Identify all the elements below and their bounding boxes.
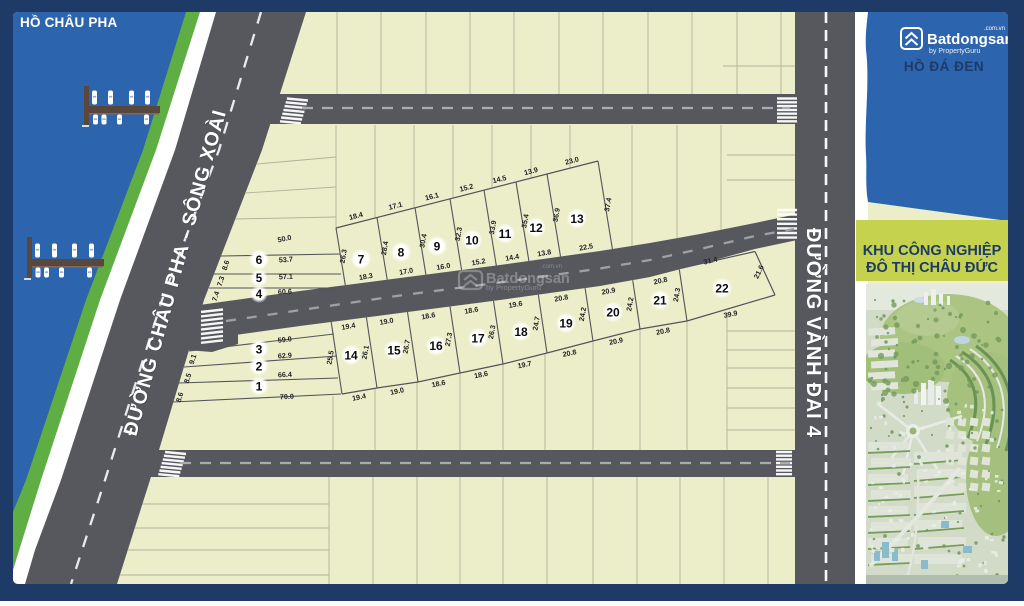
svg-text:59.0: 59.0 [277, 334, 292, 344]
svg-text:4: 4 [256, 289, 263, 301]
svg-text:13: 13 [570, 212, 584, 226]
svg-text:HỒ ĐÁ ĐEN: HỒ ĐÁ ĐEN [904, 59, 984, 74]
svg-text:70.0: 70.0 [280, 392, 294, 402]
svg-text:20: 20 [606, 305, 620, 319]
svg-text:by PropertyGuru: by PropertyGuru [929, 48, 980, 55]
svg-text:by PropertyGuru: by PropertyGuru [486, 283, 541, 292]
svg-text:17: 17 [471, 331, 485, 345]
svg-text:12: 12 [529, 221, 543, 235]
svg-text:15: 15 [387, 343, 401, 357]
svg-text:60.6: 60.6 [278, 287, 292, 297]
svg-text:10: 10 [465, 233, 479, 247]
svg-text:14: 14 [344, 348, 358, 362]
svg-text:21: 21 [653, 293, 667, 307]
svg-text:.com.vn: .com.vn [984, 26, 1005, 32]
svg-text:Batdongsan: Batdongsan [927, 31, 1014, 48]
svg-text:16: 16 [429, 339, 443, 353]
svg-text:2: 2 [256, 359, 263, 373]
svg-text:KHU CÔNG NGHIỆP: KHU CÔNG NGHIỆP [863, 241, 1002, 259]
svg-text:62.9: 62.9 [278, 351, 293, 361]
svg-text:7: 7 [358, 252, 365, 266]
svg-text:53.7: 53.7 [279, 255, 294, 265]
svg-text:11: 11 [499, 227, 512, 241]
svg-text:6: 6 [256, 253, 263, 267]
svg-text:HỒ CHÂU PHA: HỒ CHÂU PHA [20, 15, 118, 30]
svg-text:ĐÔ THỊ CHÂU ĐỨC: ĐÔ THỊ CHÂU ĐỨC [866, 258, 999, 276]
svg-text:19: 19 [559, 316, 573, 330]
svg-text:5: 5 [256, 273, 263, 285]
svg-text:9: 9 [434, 239, 441, 253]
svg-text:ĐƯỜNG VÀNH ĐAI 4: ĐƯỜNG VÀNH ĐAI 4 [802, 228, 826, 438]
svg-text:8: 8 [398, 245, 405, 259]
svg-text:3: 3 [256, 342, 263, 356]
svg-text:22: 22 [715, 281, 729, 295]
svg-text:.com.vn: .com.vn [541, 264, 562, 270]
svg-text:18: 18 [514, 325, 528, 339]
svg-text:57.1: 57.1 [279, 272, 293, 282]
svg-text:1: 1 [256, 379, 263, 393]
svg-text:66.4: 66.4 [278, 370, 292, 380]
